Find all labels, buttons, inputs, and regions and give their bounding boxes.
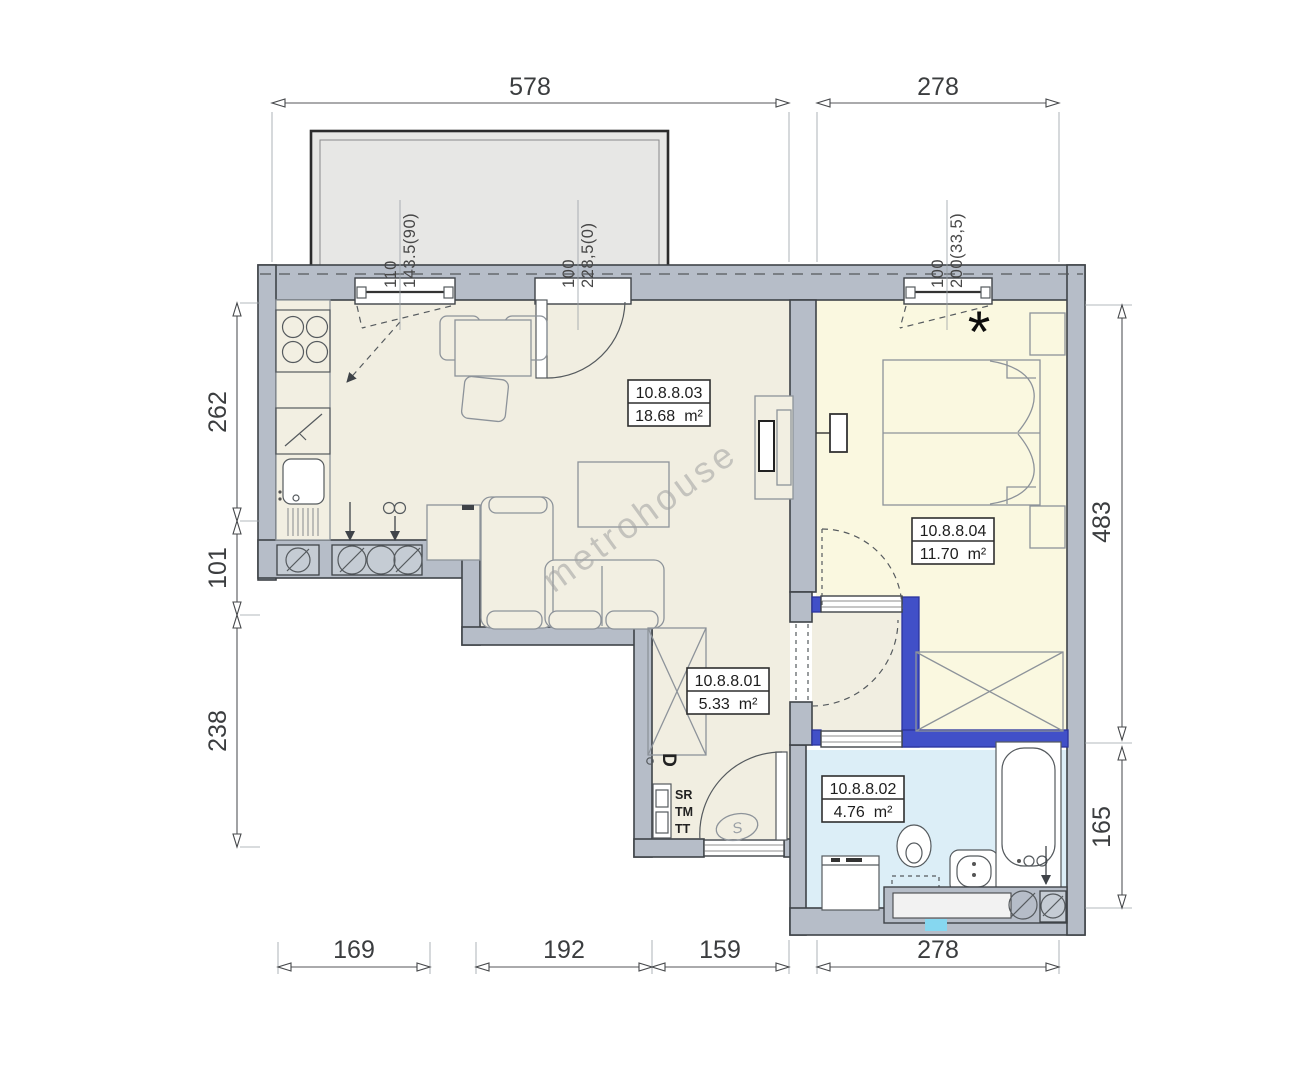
meter-label-tt: TT <box>675 822 691 836</box>
installation-shafts <box>277 545 422 575</box>
wall-right <box>1067 265 1085 935</box>
room-label-bathroom: 10.8.8.02 4.76m² <box>822 776 904 822</box>
electrical-panel <box>653 784 671 838</box>
washing-machine <box>822 856 879 910</box>
door-letter-label: D <box>658 753 679 767</box>
room-id: 10.8.8.03 <box>636 385 703 402</box>
accent-wall-stub-bottom <box>812 730 821 745</box>
nightstand-top <box>1030 313 1065 355</box>
room-area: 18.68m² <box>635 408 703 425</box>
room-label-hall: 10.8.8.01 5.33m² <box>687 668 769 714</box>
duct-marker <box>925 919 947 931</box>
wall-vestibule-b <box>790 702 812 745</box>
accent-wall-stub-top <box>812 597 821 612</box>
wall-step-horizontal <box>462 627 652 645</box>
dim-value: 578 <box>509 73 551 101</box>
wall-living-bedroom <box>790 300 816 592</box>
tv-unit-living <box>755 396 793 499</box>
vestibule-opening-bottom <box>821 731 902 747</box>
room-label-bedroom: 10.8.8.04 11.70m² <box>912 518 994 564</box>
asterisk-annotation: * <box>968 300 991 365</box>
bed <box>883 360 1040 505</box>
floor-plan-page: S <box>0 0 1303 1080</box>
room-id: 10.8.8.02 <box>830 781 897 798</box>
room-id: 10.8.8.04 <box>920 523 987 540</box>
vestibule-opening-top <box>821 596 902 612</box>
wall-bath-left <box>790 745 806 935</box>
floor-plan-drawing: S <box>0 0 1303 1080</box>
wall-hall-bottom <box>634 839 704 857</box>
dim-value: 165 <box>1088 806 1116 848</box>
dim-value: 278 <box>917 936 959 964</box>
wall-hall-left <box>634 627 652 857</box>
window-spec-3: 100200(33,5) <box>929 213 966 288</box>
balcony <box>311 131 668 267</box>
dim-value: 192 <box>543 936 585 964</box>
bathtub <box>996 742 1061 892</box>
room-label-living: 10.8.8.03 18.68m² <box>628 380 710 426</box>
dim-value: 101 <box>204 547 232 589</box>
room-area: 4.76m² <box>834 804 893 821</box>
wall-left <box>258 265 276 580</box>
dim-value: 238 <box>204 710 232 752</box>
dim-value: 169 <box>333 936 375 964</box>
vestibule-floor <box>812 612 902 730</box>
meter-label-sr: SR <box>675 788 692 802</box>
side-table <box>427 505 480 560</box>
room-id: 10.8.8.01 <box>695 673 762 690</box>
nightstand-bottom <box>1030 506 1065 548</box>
meter-label-tm: TM <box>675 805 693 819</box>
dim-value: 159 <box>699 936 741 964</box>
dim-value: 483 <box>1088 501 1116 543</box>
room-area: 11.70m² <box>920 546 987 563</box>
wall-vestibule-a <box>790 592 812 622</box>
dim-value: 262 <box>204 391 232 433</box>
room-area: 5.33m² <box>699 696 758 713</box>
dim-value: 278 <box>917 73 959 101</box>
